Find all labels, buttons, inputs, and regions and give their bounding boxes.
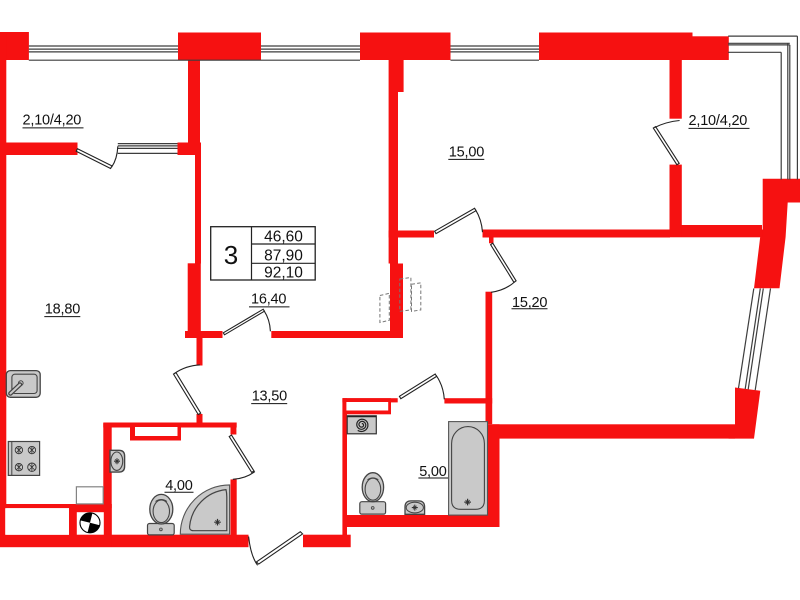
svg-text:46,60: 46,60 [264,228,303,245]
svg-text:18,80: 18,80 [45,302,80,318]
svg-text:92,10: 92,10 [264,264,303,281]
svg-text:3: 3 [224,240,238,270]
svg-text:87,90: 87,90 [264,248,303,265]
svg-text:2,10/4,20: 2,10/4,20 [23,112,82,128]
svg-text:5,00: 5,00 [419,464,447,480]
svg-text:4,00: 4,00 [165,478,193,494]
svg-text:2,10/4,20: 2,10/4,20 [689,113,748,129]
svg-text:13,50: 13,50 [252,389,287,405]
svg-text:16,40: 16,40 [251,291,286,307]
svg-text:15,00: 15,00 [449,144,484,160]
